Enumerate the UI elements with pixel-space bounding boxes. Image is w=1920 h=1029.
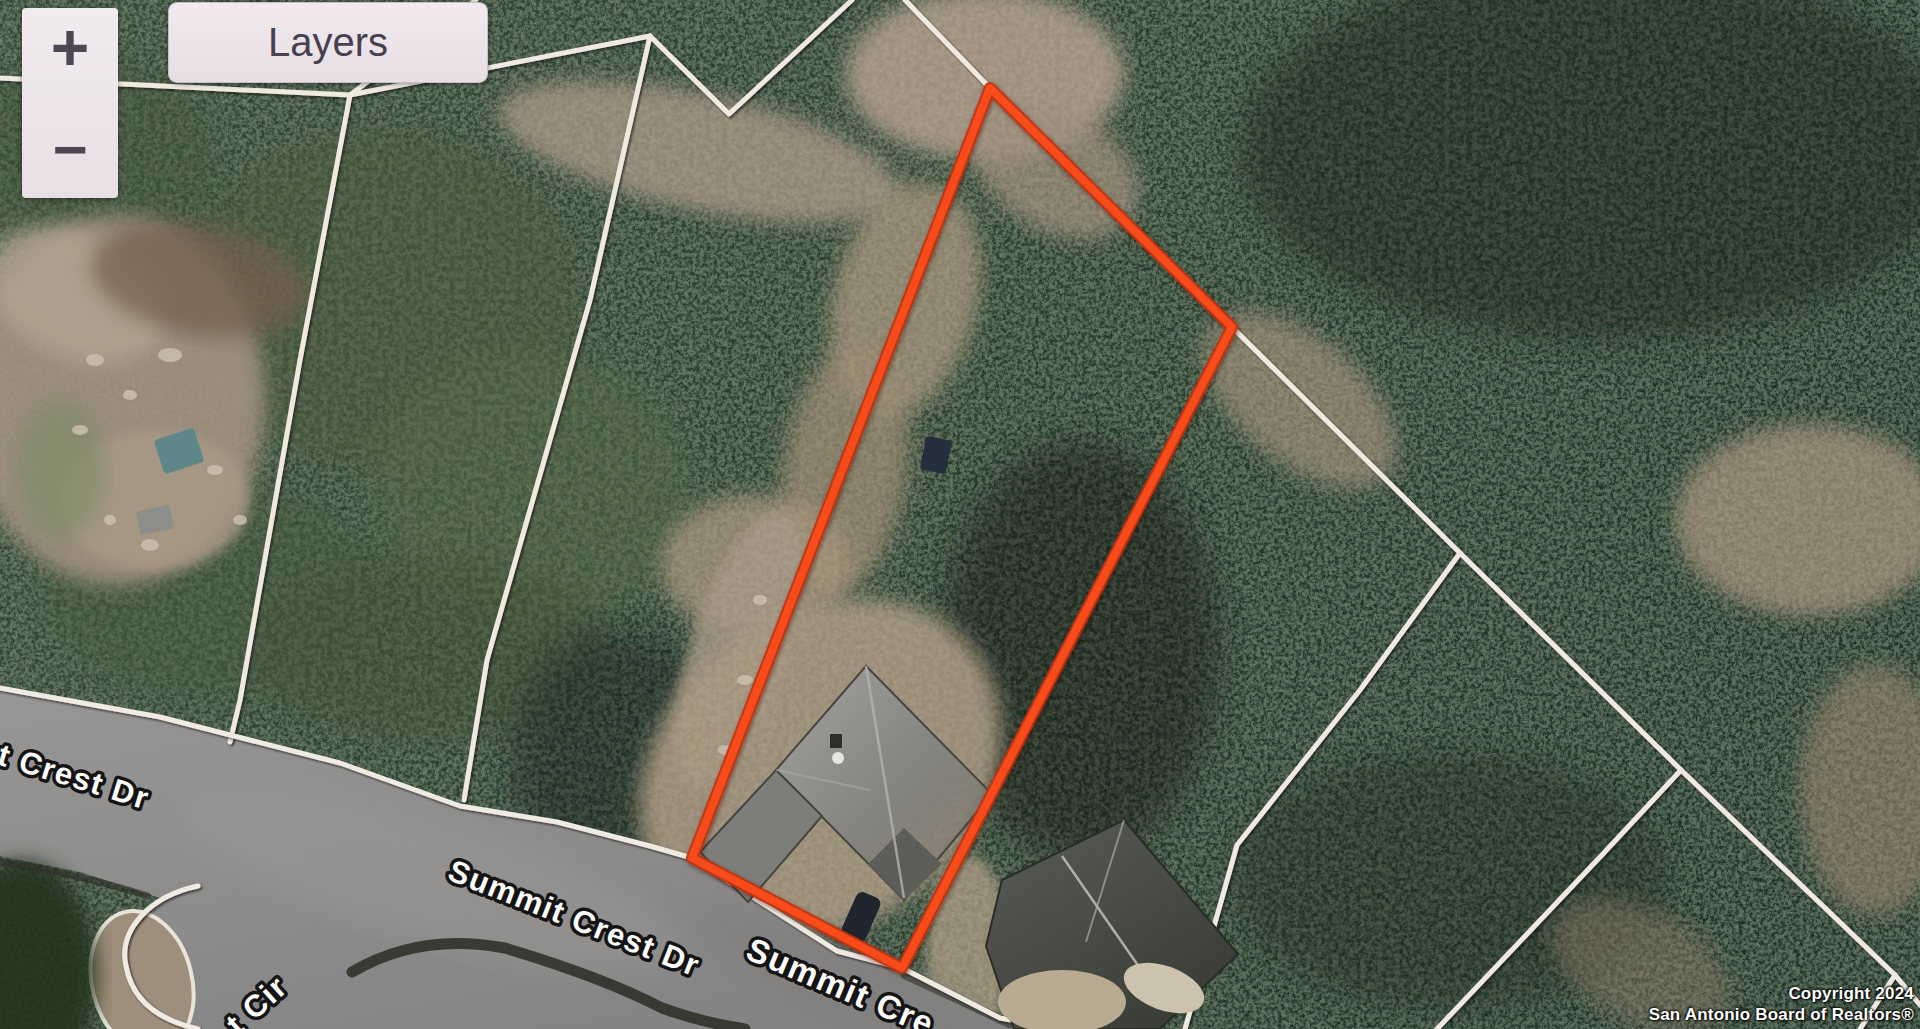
zoom-out-button[interactable]: − <box>22 120 118 180</box>
zoom-in-button[interactable]: + <box>22 14 118 80</box>
copyright-line1: Copyright 2024 <box>1649 983 1914 1004</box>
map-viewer: t Crest Dr Summit Crest Dr Summit Cre t … <box>0 0 1920 1029</box>
copyright-line2: San Antonio Board of Realtors® <box>1649 1004 1914 1025</box>
satellite-map[interactable]: t Crest Dr Summit Crest Dr Summit Cre t … <box>0 0 1920 1029</box>
zoom-control: + − <box>22 8 118 198</box>
copyright-notice: Copyright 2024 San Antonio Board of Real… <box>1649 983 1914 1026</box>
layers-button[interactable]: Layers <box>168 2 488 83</box>
